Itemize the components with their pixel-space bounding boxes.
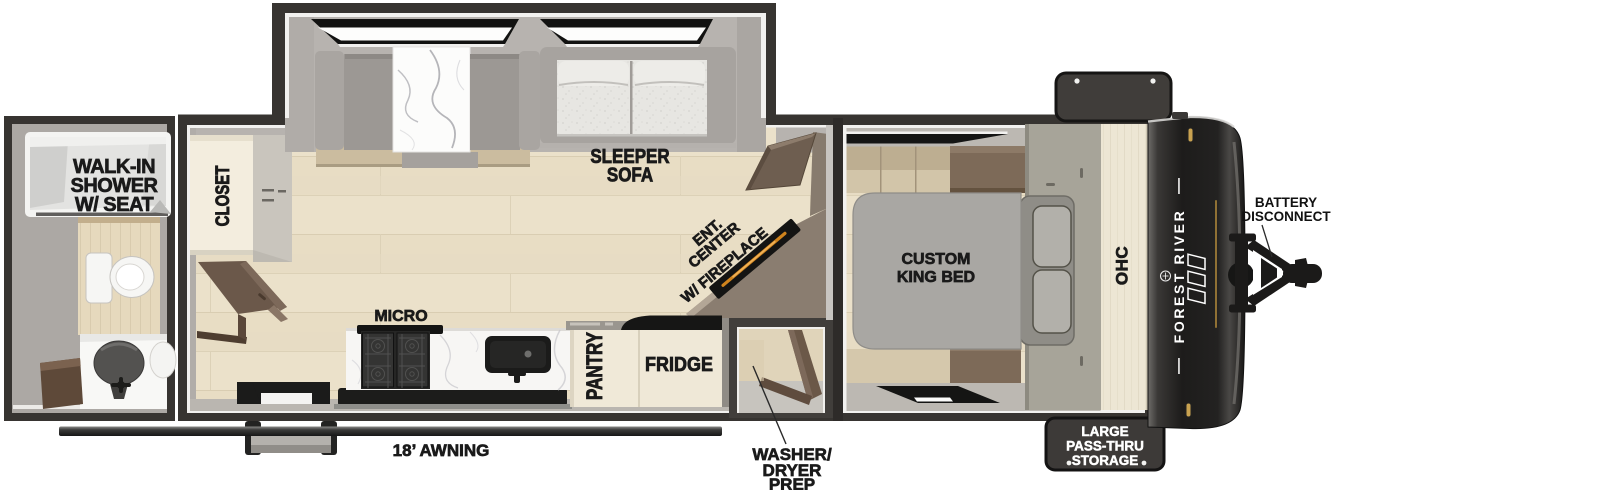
svg-text:W/ SEAT: W/ SEAT: [75, 194, 154, 216]
svg-text:CUSTOM: CUSTOM: [901, 251, 970, 268]
svg-text:FRIDGE: FRIDGE: [645, 353, 713, 376]
svg-text:CLOSET: CLOSET: [211, 165, 233, 226]
svg-text:PANTRY: PANTRY: [583, 332, 608, 400]
svg-text:BATTERY: BATTERY: [1255, 195, 1317, 210]
svg-text:18’ AWNING: 18’ AWNING: [393, 441, 490, 460]
svg-text:PASS-THRU: PASS-THRU: [1066, 439, 1144, 454]
svg-text:PREP: PREP: [769, 475, 815, 490]
svg-text:SOFA: SOFA: [607, 163, 654, 186]
svg-text:FOREST RIVER: FOREST RIVER: [1171, 209, 1187, 344]
svg-text:MICRO: MICRO: [374, 308, 427, 325]
svg-text:DISCONNECT: DISCONNECT: [1241, 209, 1331, 224]
svg-text:KING BED: KING BED: [897, 269, 975, 286]
svg-text:LARGE: LARGE: [1081, 424, 1128, 439]
svg-text:OHC: OHC: [1113, 246, 1132, 285]
svg-text:STORAGE: STORAGE: [1072, 453, 1139, 468]
